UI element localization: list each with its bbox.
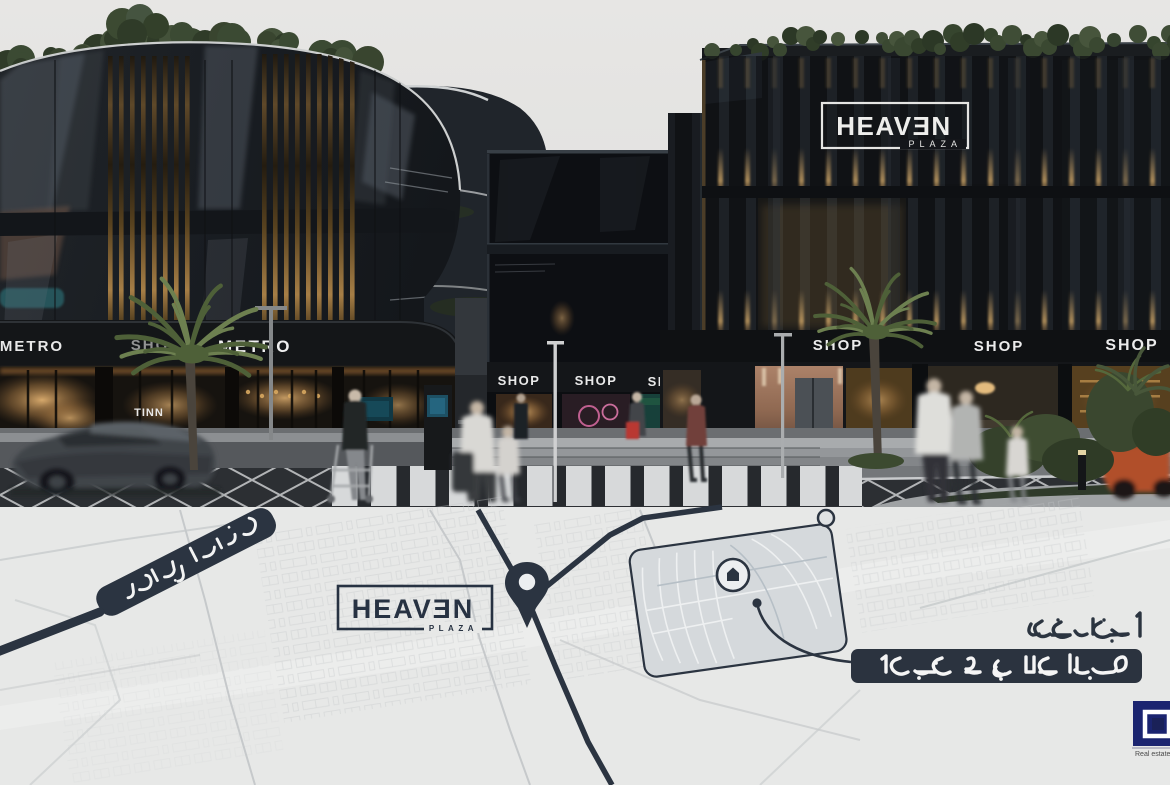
svg-text:SHOP: SHOP <box>575 373 618 388</box>
svg-text:HEAVƎN: HEAVƎN <box>352 594 475 624</box>
svg-text:Real estate: Real estate <box>1135 751 1170 758</box>
svg-text:METRO: METRO <box>0 338 64 355</box>
svg-text:PLAZA: PLAZA <box>908 139 962 149</box>
svg-text:SHOP: SHOP <box>974 338 1025 355</box>
svg-text:TINN: TINN <box>134 407 164 419</box>
svg-text:HEAVƎN: HEAVƎN <box>836 111 951 141</box>
svg-text:SHOP: SHOP <box>1105 337 1158 354</box>
svg-text:PLAZA: PLAZA <box>429 624 478 633</box>
svg-text:SHOP: SHOP <box>498 373 541 388</box>
